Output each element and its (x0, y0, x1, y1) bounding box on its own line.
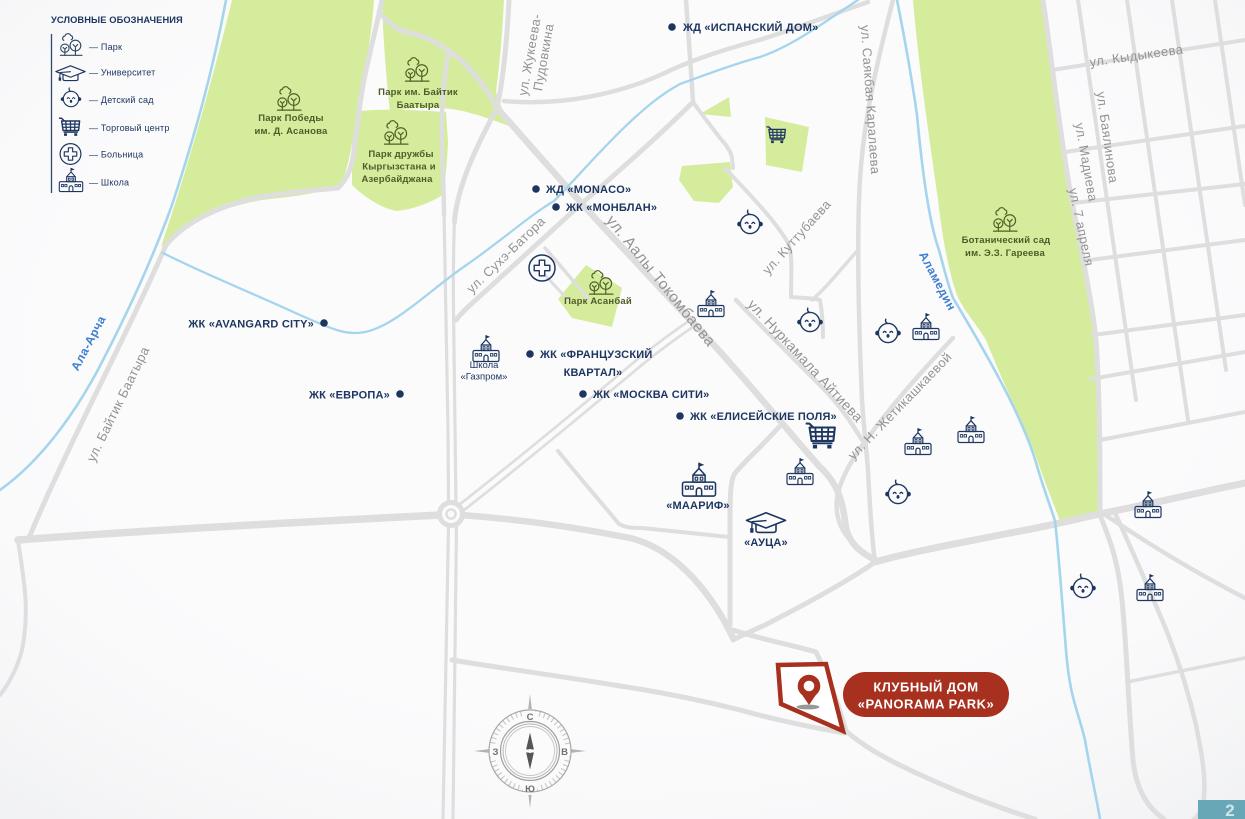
svg-text:В: В (561, 747, 568, 758)
svg-text:С: С (527, 712, 534, 723)
svg-text:ЖД «ИСПАНСКИЙ ДОМ»: ЖД «ИСПАНСКИЙ ДОМ» (682, 21, 818, 34)
svg-text:З: З (493, 747, 499, 758)
svg-text:— Парк: — Парк (89, 42, 122, 52)
svg-text:УСЛОВНЫЕ ОБОЗНАЧЕНИЯ: УСЛОВНЫЕ ОБОЗНАЧЕНИЯ (51, 15, 183, 25)
svg-text:ЖК «МОСКВА СИТИ»: ЖК «МОСКВА СИТИ» (592, 389, 709, 401)
svg-text:им. Э.З. Гареева: им. Э.З. Гареева (965, 248, 1045, 259)
svg-text:КЛУБНЫЙ ДОМ: КЛУБНЫЙ ДОМ (873, 680, 978, 695)
svg-text:Парк Победы: Парк Победы (258, 113, 323, 124)
svg-text:Баатыра: Баатыра (397, 100, 440, 111)
svg-text:«PANORAMA PARK»: «PANORAMA PARK» (858, 697, 995, 712)
svg-text:— Больница: — Больница (89, 150, 143, 160)
svg-text:2: 2 (1225, 801, 1234, 819)
svg-text:Парк им. Байтик: Парк им. Байтик (378, 87, 458, 98)
svg-text:— Детский сад: — Детский сад (89, 95, 154, 105)
svg-text:КВАРТАЛ»: КВАРТАЛ» (564, 367, 623, 379)
svg-text:ЖК «ФРАНЦУЗСКИЙ: ЖК «ФРАНЦУЗСКИЙ (539, 348, 652, 361)
svg-text:Ботанический сад: Ботанический сад (962, 235, 1051, 246)
svg-text:ЖК «AVANGARD CITY»: ЖК «AVANGARD CITY» (187, 319, 314, 331)
svg-text:— Школа: — Школа (89, 178, 129, 188)
svg-text:Кыргызстана и: Кыргызстана и (362, 162, 436, 173)
svg-text:ЖК «ЕВРОПА»: ЖК «ЕВРОПА» (308, 390, 390, 402)
svg-text:«АУЦА»: «АУЦА» (744, 537, 788, 549)
svg-text:Парк дружбы: Парк дружбы (368, 149, 433, 160)
svg-text:ЖД «MONACO»: ЖД «MONACO» (545, 184, 631, 196)
svg-text:«МААРИФ»: «МААРИФ» (666, 500, 730, 512)
svg-text:Азербайджана: Азербайджана (361, 174, 433, 185)
svg-text:Ю: Ю (525, 784, 535, 795)
svg-text:ЖК «ЕЛИСЕЙСКИЕ ПОЛЯ»: ЖК «ЕЛИСЕЙСКИЕ ПОЛЯ» (689, 410, 837, 423)
svg-text:им. Д. Асанова: им. Д. Асанова (255, 126, 328, 137)
svg-text:— Университет: — Университет (89, 68, 155, 78)
svg-text:Парк Асанбай: Парк Асанбай (564, 296, 632, 307)
svg-text:«Газпром»: «Газпром» (461, 372, 508, 383)
svg-text:ЖК «МОНБЛАН»: ЖК «МОНБЛАН» (565, 202, 657, 214)
svg-text:— Торговый центр: — Торговый центр (89, 123, 170, 133)
